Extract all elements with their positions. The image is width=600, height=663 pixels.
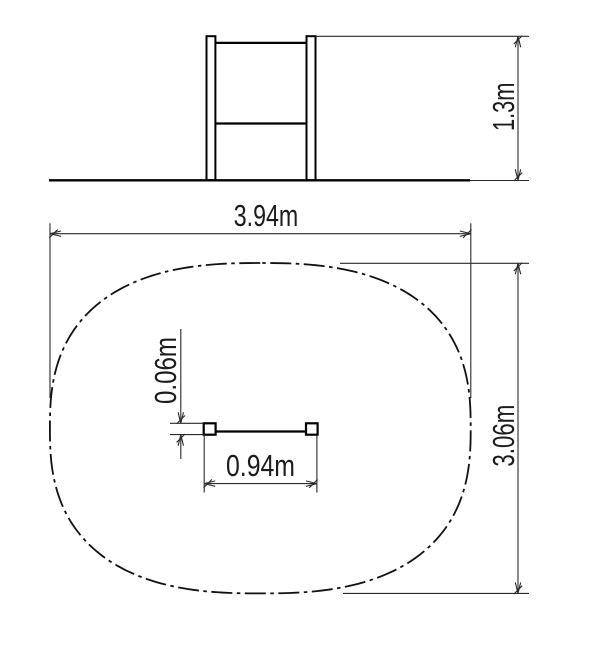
svg-text:0.94m: 0.94m bbox=[226, 448, 295, 483]
svg-text:1.3m: 1.3m bbox=[486, 83, 521, 132]
svg-text:0.06m: 0.06m bbox=[148, 337, 183, 404]
svg-text:3.06m: 3.06m bbox=[486, 405, 521, 467]
svg-text:3.94m: 3.94m bbox=[234, 198, 299, 233]
